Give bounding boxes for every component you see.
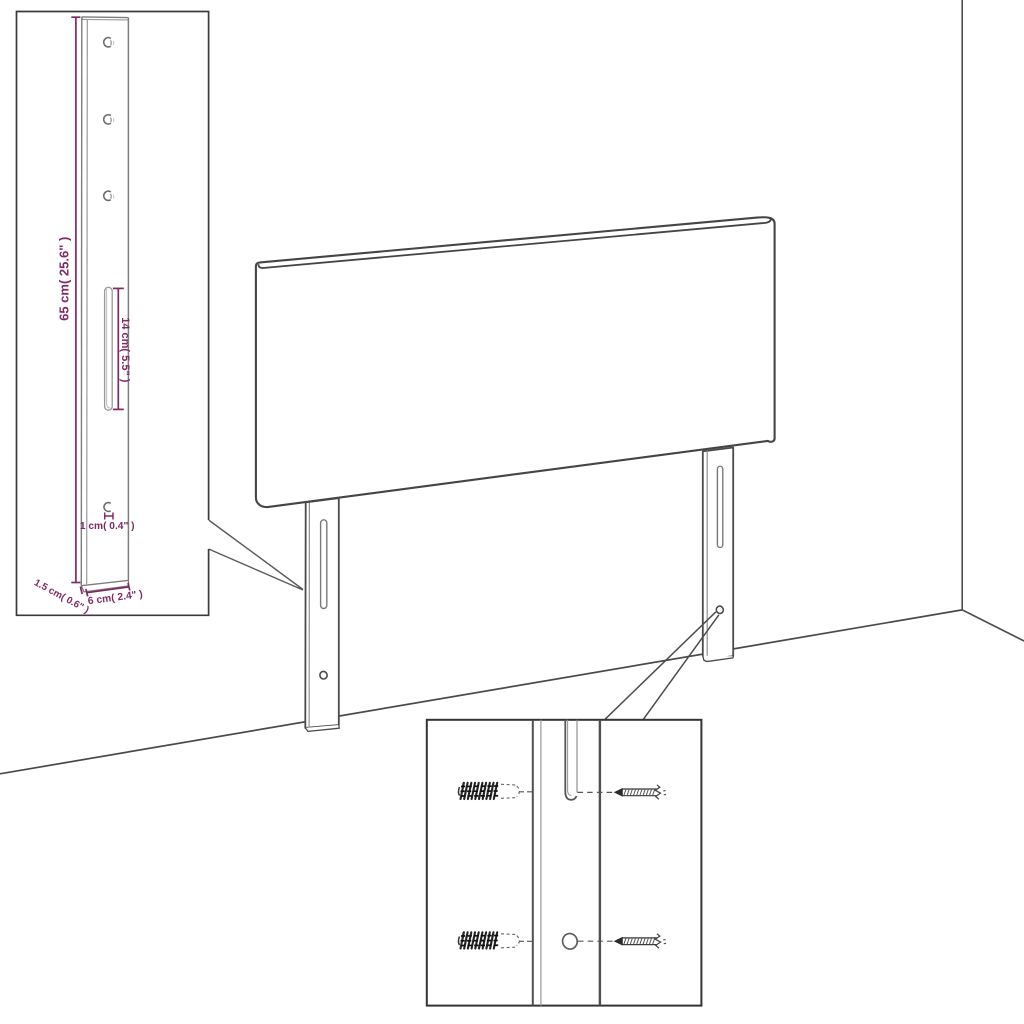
svg-text:1 cm( 0.4" ): 1 cm( 0.4" ) [80, 521, 135, 532]
svg-text:65 cm( 25.6" ): 65 cm( 25.6" ) [56, 237, 71, 321]
svg-text:14 cm( 5.5" ): 14 cm( 5.5" ) [119, 317, 131, 382]
